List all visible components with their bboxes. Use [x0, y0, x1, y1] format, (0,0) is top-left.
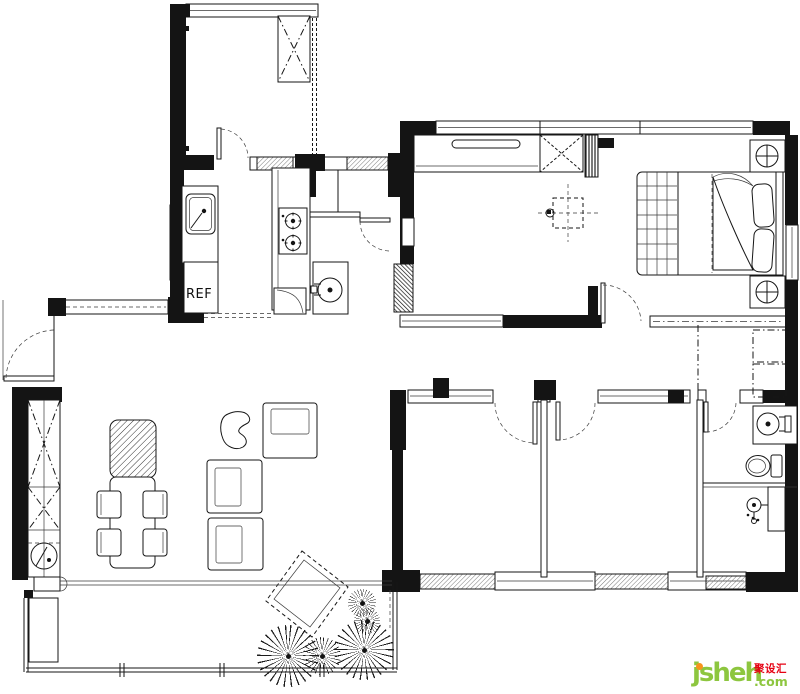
floor-plan: REF jsheh 聚设汇 .com — [0, 0, 800, 694]
wardrobe-handle — [452, 140, 520, 148]
door-leaf — [360, 218, 390, 222]
washbasin-icon — [311, 278, 342, 302]
bathroom — [703, 402, 797, 531]
brand-side-block: 聚设汇 .com — [754, 664, 788, 688]
door-leaf — [556, 402, 560, 440]
watermark-logo: jsheh 聚设汇 .com — [692, 658, 798, 692]
door-swing — [221, 129, 248, 158]
sofa-set — [207, 403, 317, 570]
entry-door — [3, 300, 54, 381]
door-swing — [603, 285, 641, 321]
plant-icon — [334, 620, 394, 680]
wall-pier — [585, 135, 598, 177]
door-swing — [495, 403, 535, 443]
duct-shaft — [394, 264, 413, 312]
corridor-closet — [698, 325, 786, 400]
rug — [266, 551, 348, 637]
closet-icon — [753, 330, 786, 362]
brand-text: jsheh — [692, 659, 761, 687]
lounge-chair — [221, 412, 250, 449]
dining-chair — [97, 529, 121, 556]
shower-niche — [768, 487, 785, 531]
switch-icon — [184, 26, 189, 31]
door-leaf — [217, 128, 221, 159]
brand-dot-icon — [696, 663, 703, 670]
master-bedroom — [414, 135, 785, 323]
toilet-icon — [746, 455, 782, 477]
dining-table — [97, 420, 167, 568]
door-leaf — [601, 283, 605, 323]
nightstand-icon — [750, 140, 785, 172]
storage-cabinet — [28, 400, 60, 577]
kitchen-sink-icon — [186, 194, 215, 234]
switch-icon — [184, 146, 189, 151]
bed-icon — [637, 172, 783, 275]
cabinet-icon — [540, 135, 583, 172]
corner-cabinet — [274, 288, 306, 314]
dining-chair — [143, 529, 167, 556]
headboard — [776, 172, 783, 275]
door-swing — [6, 330, 54, 378]
door-leaf — [533, 402, 537, 444]
dining-chair — [97, 491, 121, 518]
door-leaf — [704, 402, 708, 432]
floor-plan-drawing — [0, 0, 800, 694]
ceiling-fixture — [538, 184, 598, 242]
stove-icon — [279, 208, 307, 254]
pillow — [752, 183, 775, 227]
top-room — [184, 16, 317, 159]
balcony-planter — [29, 598, 58, 662]
refrigerator-label: REF — [186, 287, 212, 302]
dining-chair — [143, 491, 167, 518]
door-leaf — [4, 376, 54, 381]
door-swing — [558, 403, 595, 440]
door-swing — [360, 221, 390, 251]
door-swing — [706, 403, 736, 432]
pillow — [751, 228, 774, 272]
nightstand-icon — [750, 276, 785, 308]
brand-tld: .com — [754, 675, 788, 688]
laundry-sink — [34, 577, 60, 591]
living-dining — [28, 400, 348, 662]
